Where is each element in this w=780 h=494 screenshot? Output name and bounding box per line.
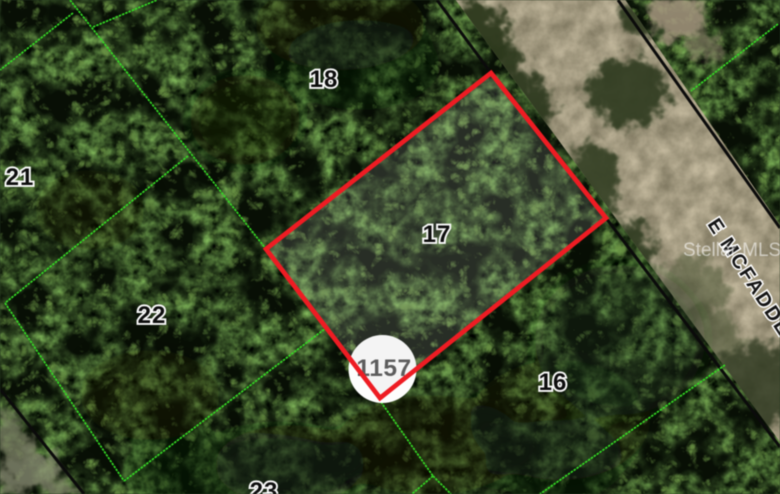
svg-text:21: 21 — [6, 164, 35, 191]
svg-text:22: 22 — [138, 302, 167, 329]
svg-text:Stellar MLS: Stellar MLS — [683, 240, 780, 261]
svg-text:16: 16 — [539, 369, 568, 396]
svg-text:17: 17 — [423, 221, 452, 248]
svg-text:23: 23 — [250, 478, 279, 494]
svg-text:18: 18 — [310, 66, 339, 93]
